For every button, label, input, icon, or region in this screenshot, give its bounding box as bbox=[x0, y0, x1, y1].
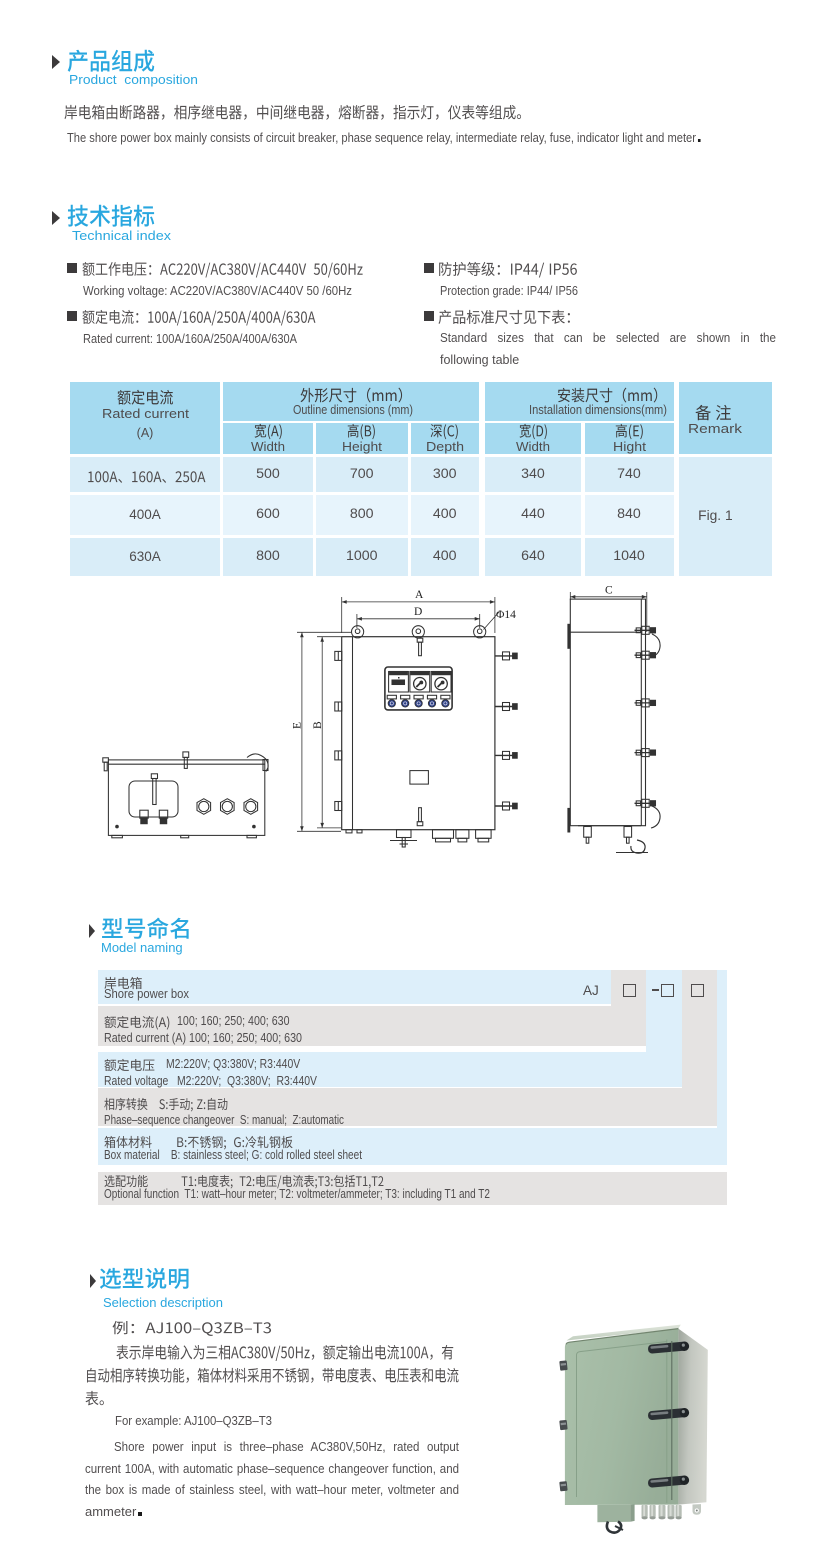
svg-text:E: E bbox=[292, 722, 304, 729]
svg-text:Φ14: Φ14 bbox=[496, 609, 516, 621]
svg-text:D: D bbox=[414, 606, 422, 618]
svg-text:A: A bbox=[415, 589, 424, 601]
svg-text:C: C bbox=[605, 585, 613, 597]
svg-text:B: B bbox=[312, 721, 324, 729]
